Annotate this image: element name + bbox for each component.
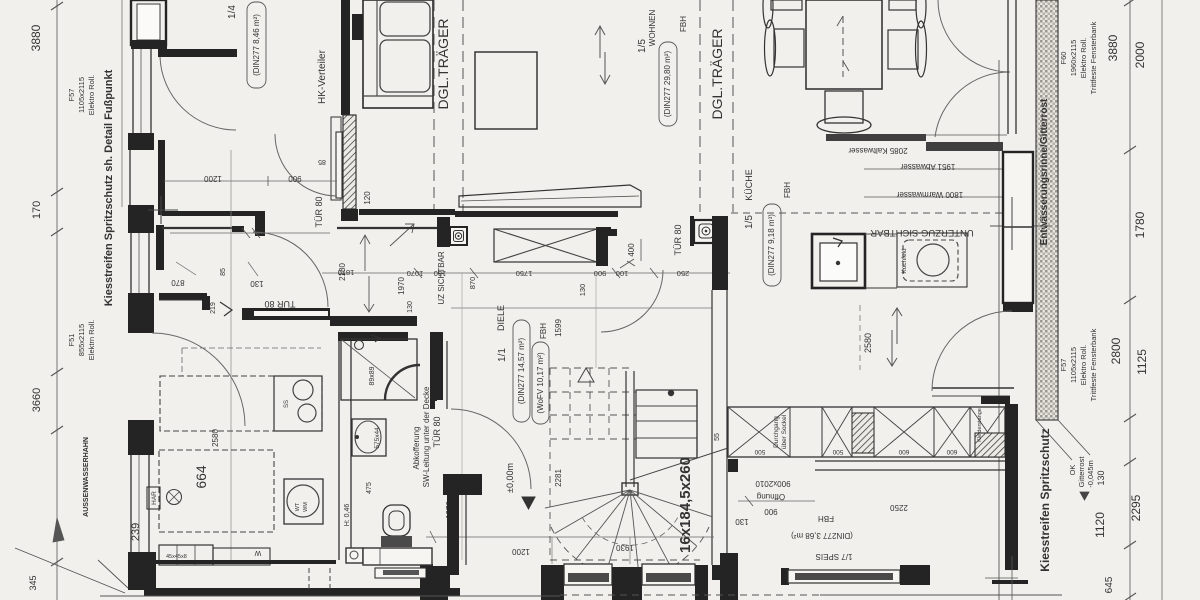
svg-text:130: 130 [434,269,447,278]
svg-text:900: 900 [288,174,302,183]
svg-text:645: 645 [1104,576,1115,593]
svg-text:H: 0,46: H: 0,46 [344,504,351,527]
svg-text:KÜCHE: KÜCHE [744,169,754,201]
svg-text:Durchgang: Durchgang [773,416,780,448]
svg-text:575x44: 575x44 [374,427,381,449]
svg-text:2000: 2000 [1133,41,1147,68]
svg-text:Entwässerungsrinne/Gitterrost: Entwässerungsrinne/Gitterrost [1039,98,1050,245]
svg-text:1105x2115: 1105x2115 [1069,347,1078,383]
svg-text:(DIN277 3,68 m²): (DIN277 3,68 m²) [791,531,853,540]
svg-text:TÜR 80: TÜR 80 [432,416,442,447]
svg-text:600: 600 [946,448,957,455]
svg-text:250: 250 [677,269,690,278]
svg-text:664: 664 [193,465,209,489]
svg-text:Gitterrost: Gitterrost [1077,456,1086,488]
svg-text:1/1: 1/1 [497,348,508,362]
svg-text:2800: 2800 [1109,337,1123,364]
svg-text:über Sockel: über Sockel [781,414,788,449]
svg-text:F57: F57 [1059,359,1068,372]
svg-text:1780: 1780 [1133,211,1147,238]
svg-text:1/7 SPEIS: 1/7 SPEIS [816,552,853,561]
svg-text:130: 130 [735,517,749,526]
svg-text:170: 170 [31,201,43,219]
svg-text:2281: 2281 [554,469,563,487]
svg-text:1/5: 1/5 [744,215,755,229]
svg-text:1970: 1970 [397,277,406,295]
svg-text:600: 600 [898,448,909,455]
svg-text:870: 870 [171,278,185,287]
svg-text:(DIN277 9,18 m³): (DIN277 9,18 m³) [767,214,776,276]
svg-text:DGL.TRÄGER: DGL.TRÄGER [709,28,725,119]
svg-text:130: 130 [1096,470,1106,485]
svg-text:85: 85 [318,158,326,165]
svg-text:OK: OK [1068,465,1077,476]
svg-text:345: 345 [28,575,38,590]
svg-text:Trittfeste Fensterbank: Trittfeste Fensterbank [1089,21,1098,94]
svg-text:TÜR 80: TÜR 80 [314,196,324,227]
svg-text:1960x2115: 1960x2115 [1069,40,1078,77]
svg-text:Elektrn Roll.: Elektrn Roll. [87,320,96,360]
svg-text:1930: 1930 [616,543,634,552]
svg-text:3880: 3880 [29,24,43,51]
svg-text:2580: 2580 [211,429,220,447]
svg-text:SS: SS [284,400,290,408]
svg-text:55: 55 [714,433,721,441]
svg-text:870: 870 [468,277,477,290]
svg-text:F60: F60 [1059,52,1068,65]
svg-text:(DIN277 14,57 m²): (DIN277 14,57 m²) [517,338,526,405]
svg-text:85: 85 [220,268,227,276]
svg-text:-0,045m: -0,045m [1086,460,1095,488]
svg-text:SW-Leitung unter der Decke: SW-Leitung unter der Decke [422,386,431,487]
svg-text:DGL.TRÄGER: DGL.TRÄGER [435,18,451,109]
svg-text:500: 500 [754,448,765,455]
svg-text:16x184,5x260: 16x184,5x260 [677,457,694,553]
svg-text:3660: 3660 [31,388,43,412]
svg-text:1125: 1125 [1135,349,1149,375]
svg-text:FBH: FBH [539,323,548,339]
svg-text:W: W [254,549,261,556]
svg-text:Öffnung: Öffnung [757,492,785,501]
svg-text:WM: WM [303,502,309,512]
svg-text:130: 130 [578,284,587,297]
svg-text:100: 100 [616,269,629,278]
svg-text:Elektro Roll.: Elektro Roll. [1079,345,1088,385]
svg-text:855x2115: 855x2115 [77,324,86,356]
svg-text:±0,00m: ±0,00m [505,463,515,493]
svg-text:1120: 1120 [1093,512,1107,538]
svg-text:(DIN277 8,46 m²): (DIN277 8,46 m²) [252,14,261,76]
svg-text:475: 475 [366,482,373,494]
svg-text:1200: 1200 [204,174,222,183]
svg-text:239: 239 [130,523,142,541]
svg-text:1105x2115: 1105x2115 [77,77,86,113]
svg-text:WT: WT [295,502,301,511]
svg-text:2295: 2295 [1129,494,1143,521]
svg-text:FBH: FBH [818,514,834,523]
svg-text:DIELE: DIELE [496,305,506,331]
svg-text:219: 219 [210,302,217,314]
svg-text:Kiesstreifen Spritzschutz sh.: Kiesstreifen Spritzschutz sh. Detail Fuß… [103,69,115,306]
svg-text:1800 Warmwasser: 1800 Warmwasser [896,190,963,199]
svg-text:(WoFV 10,17 m²): (WoFV 10,17 m²) [536,352,545,414]
svg-text:130: 130 [407,301,414,313]
svg-text:500: 500 [832,448,843,455]
svg-text:(DIN277 29,80 m²): (DIN277 29,80 m²) [663,51,672,118]
svg-text:WOHNEN: WOHNEN [648,10,657,47]
svg-text:TÜR 80: TÜR 80 [264,299,295,309]
svg-text:HK-Verteiler: HK-Verteiler [317,49,328,104]
svg-text:TÜR 80: TÜR 80 [673,224,683,255]
svg-text:2580: 2580 [863,333,873,353]
svg-text:400: 400 [627,243,636,257]
svg-text:1/5: 1/5 [637,39,648,53]
svg-text:2250: 2250 [890,503,908,512]
svg-text:3880: 3880 [1106,34,1120,61]
svg-text:Kleiderstange: Kleiderstange [977,408,983,442]
svg-text:Elektro Roll.: Elektro Roll. [1079,38,1088,78]
svg-text:89x89: 89x89 [369,366,376,385]
svg-text:FBH: FBH [783,182,792,198]
svg-text:130: 130 [250,279,264,288]
svg-text:900x2010: 900x2010 [755,479,791,488]
svg-text:Kochfeld: Kochfeld [901,248,908,274]
svg-text:2180: 2180 [338,263,347,281]
svg-text:1200: 1200 [512,547,530,556]
svg-text:HAR: HAR [151,491,158,505]
svg-text:Abkofferung: Abkofferung [412,427,421,470]
svg-text:1599: 1599 [554,319,563,337]
svg-text:900: 900 [764,507,778,516]
svg-text:45x45x8: 45x45x8 [166,554,187,560]
svg-text:Kiesstreifen Spritzschutz: Kiesstreifen Spritzschutz [1038,428,1052,571]
svg-text:1951 Abwasser: 1951 Abwasser [900,162,955,171]
svg-text:120: 120 [363,191,372,205]
svg-text:1750: 1750 [516,269,533,278]
svg-text:AUSSENWASSERHAHN: AUSSENWASSERHAHN [83,437,90,517]
svg-text:900: 900 [594,269,607,278]
svg-text:F51: F51 [67,334,76,347]
svg-text:Trittfeste Fensterbank: Trittfeste Fensterbank [1089,328,1098,401]
svg-text:FBH: FBH [679,16,688,32]
svg-text:2085 Kaltwasser: 2085 Kaltwasser [848,146,907,155]
svg-text:1/4: 1/4 [227,5,238,19]
svg-text:Elektro Roll.: Elektro Roll. [87,75,96,115]
svg-text:F57: F57 [67,89,76,102]
